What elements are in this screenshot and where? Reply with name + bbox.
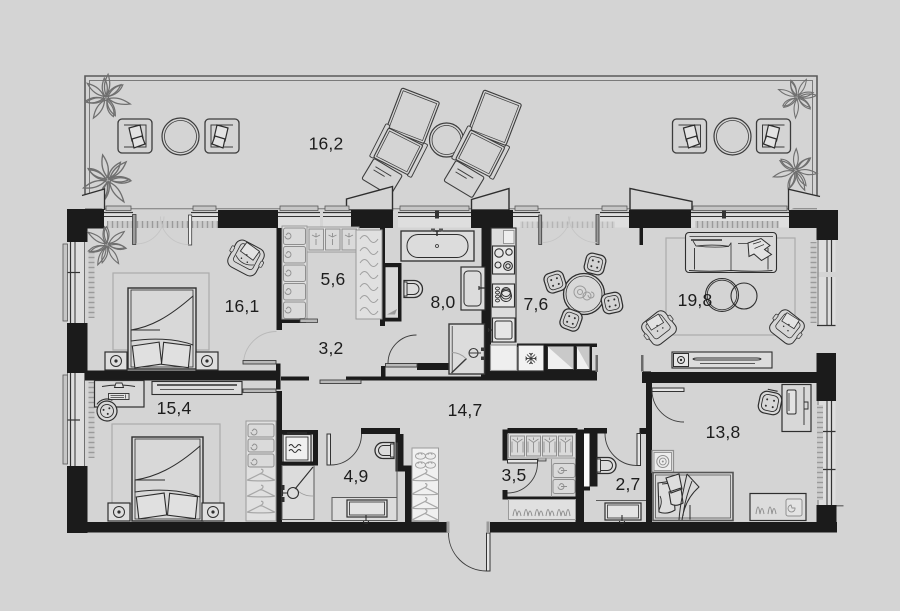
svg-text:4,9: 4,9 bbox=[344, 466, 369, 486]
svg-text:14,7: 14,7 bbox=[448, 400, 483, 420]
svg-text:7,6: 7,6 bbox=[524, 294, 549, 314]
svg-text:16,2: 16,2 bbox=[309, 134, 344, 154]
svg-text:3,5: 3,5 bbox=[502, 465, 527, 485]
svg-text:8,0: 8,0 bbox=[431, 292, 456, 312]
svg-text:15,4: 15,4 bbox=[157, 398, 192, 418]
svg-text:5,6: 5,6 bbox=[321, 269, 346, 289]
svg-text:2,7: 2,7 bbox=[616, 474, 641, 494]
svg-text:19,8: 19,8 bbox=[678, 290, 713, 310]
svg-text:3,2: 3,2 bbox=[319, 338, 344, 358]
svg-text:13,8: 13,8 bbox=[706, 422, 741, 442]
svg-text:16,1: 16,1 bbox=[225, 296, 260, 316]
